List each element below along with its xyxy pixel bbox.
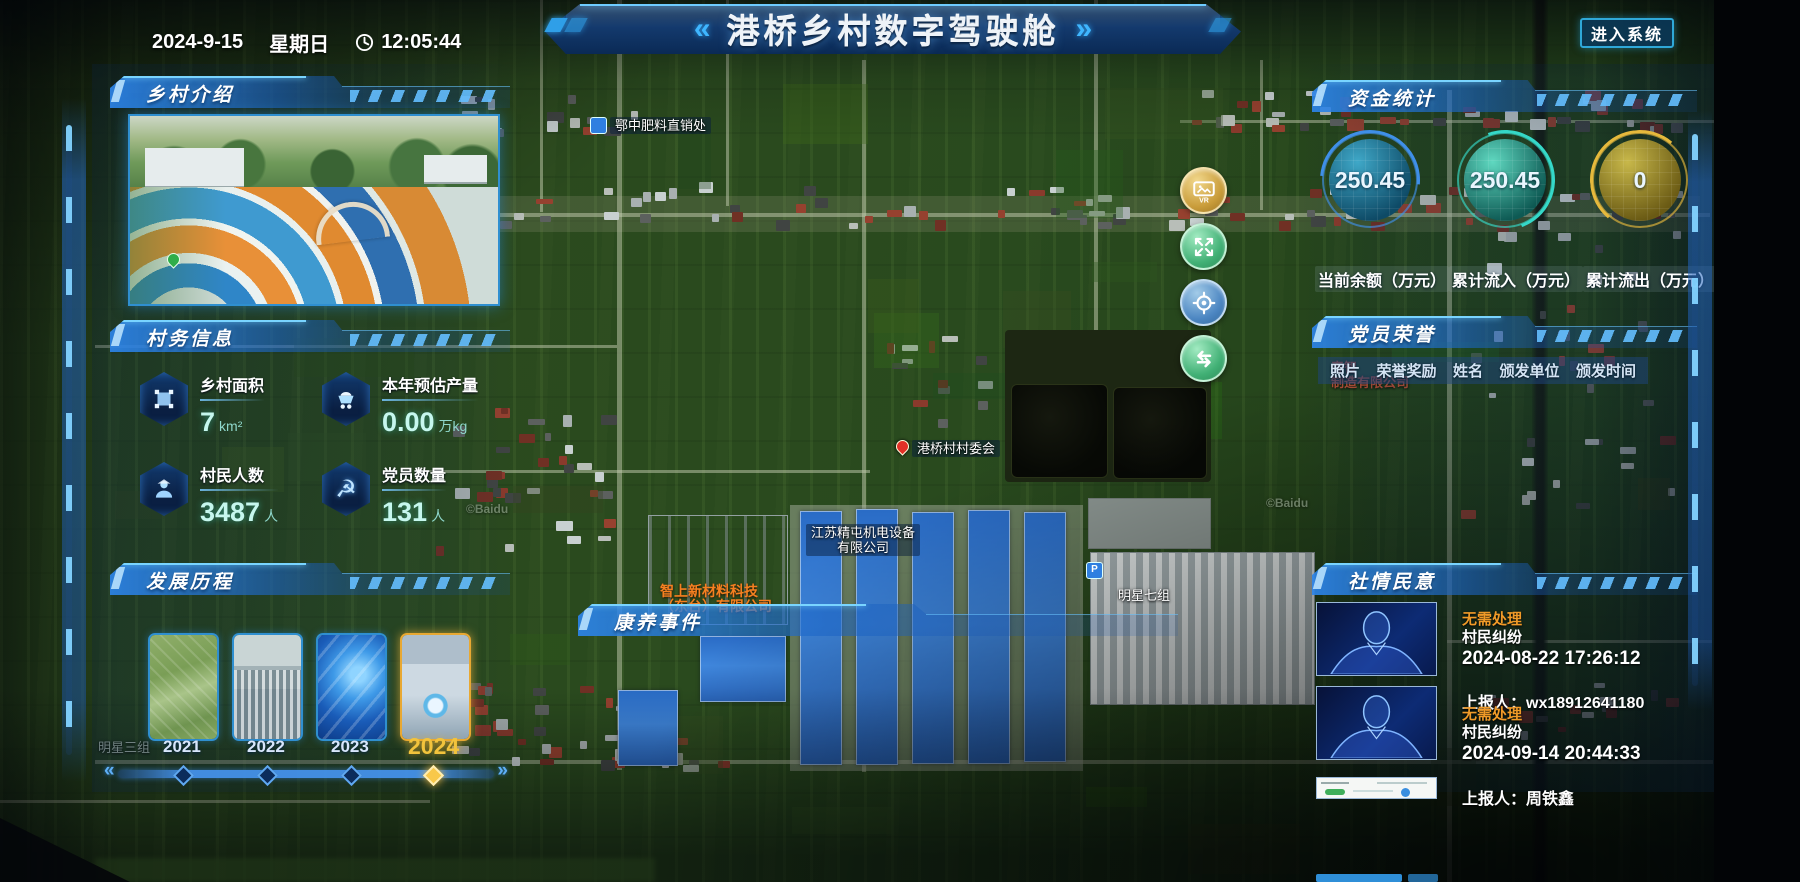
map-feature <box>1595 245 1603 253</box>
map-feature <box>1530 119 1546 130</box>
stat-estimated-yield: 本年预估产量 0.00万kg <box>322 372 512 438</box>
map-feature <box>535 705 549 715</box>
partial-thumb-edge <box>1408 874 1438 882</box>
map-feature <box>792 807 894 834</box>
map-feature <box>942 336 958 342</box>
map-feature <box>674 716 723 774</box>
map-feature <box>732 212 743 222</box>
map-feature <box>1638 478 1670 510</box>
map-feature <box>938 419 948 428</box>
map-label-line: 智上新材料科技 <box>660 583 758 599</box>
stat-value: 7km² <box>200 407 264 438</box>
gauge-outflow: 0 <box>1592 132 1688 228</box>
reporter-line: 上报人：周铁鑫 <box>1462 785 1574 809</box>
map-feature <box>617 0 622 770</box>
map-label: 港桥村村委会 <box>912 440 1000 457</box>
map-feature <box>1169 220 1186 231</box>
header-slashes-icon <box>350 90 500 102</box>
map-feature <box>1490 119 1500 127</box>
map-feature <box>601 760 615 770</box>
map-feature <box>1505 111 1519 123</box>
bright-field-band <box>95 858 655 882</box>
map-feature <box>559 456 567 465</box>
svg-text:VR: VR <box>1199 197 1209 204</box>
map-feature <box>913 400 929 406</box>
map-feature <box>565 445 573 454</box>
map-feature <box>1056 150 1124 218</box>
map-feature <box>604 188 614 195</box>
map-feature <box>904 206 916 216</box>
right-black-column <box>1714 0 1800 882</box>
map-feature <box>475 725 491 735</box>
map-feature <box>604 519 616 528</box>
stat-value: 131人 <box>382 497 446 528</box>
map-feature <box>545 433 551 441</box>
map-feature <box>567 536 581 544</box>
map-feature <box>1300 123 1308 131</box>
map-feature <box>1567 305 1575 313</box>
blue-roof <box>968 510 1010 764</box>
map-feature <box>528 419 544 425</box>
map-feature <box>1558 233 1571 241</box>
header-slashes-icon <box>1537 577 1687 589</box>
map-feature <box>512 757 520 766</box>
map-feature <box>1272 112 1285 117</box>
pond <box>1113 387 1207 479</box>
map-feature <box>1285 214 1294 220</box>
map-label: 明星七组 <box>1118 588 1170 603</box>
map-feature <box>568 95 576 103</box>
map-feature <box>436 546 444 556</box>
map-feature <box>678 129 711 189</box>
map-feature <box>606 698 613 708</box>
map-feature <box>776 220 790 232</box>
map-feature <box>849 223 859 229</box>
dashboard-screen: 鄂中肥料直销处 港桥村村委会 江苏精屯机电设备 有限公司 P 明星七组 智上新材… <box>0 0 1800 882</box>
map-feature <box>564 464 574 473</box>
map-feature <box>497 729 513 736</box>
map-feature <box>604 212 619 220</box>
map-feature <box>505 544 514 552</box>
map-feature <box>868 279 919 334</box>
map-label-line: 有限公司 <box>811 540 915 555</box>
map-feature <box>1666 698 1679 707</box>
map-feature <box>978 401 988 410</box>
event-time: 2024-08-22 17:26:12 <box>1462 647 1641 670</box>
panel-title: 发展历程 <box>146 567 234 594</box>
map-label-line: 江苏精屯机电设备 <box>811 525 915 540</box>
map-label: 鄂中肥料直销处 <box>610 117 711 134</box>
sentiment-thumb[interactable] <box>1316 686 1437 760</box>
map-feature <box>595 472 604 482</box>
year-label-2024[interactable]: 2024 <box>408 733 459 760</box>
status-badge: 无需处理 <box>1462 706 1641 724</box>
map-feature <box>796 204 807 213</box>
map-feature <box>935 220 946 231</box>
header-slashes-icon <box>350 334 500 346</box>
map-feature <box>1180 120 1714 123</box>
map-feature <box>1575 121 1591 132</box>
map-feature <box>577 463 591 469</box>
col-issuer: 颁发单位 <box>1499 360 1559 381</box>
map-feature <box>1548 117 1556 127</box>
clock-icon <box>355 33 374 52</box>
village-photo <box>128 114 500 306</box>
map-feature <box>514 213 523 220</box>
map-feature <box>1029 190 1045 196</box>
right-frame-bar <box>1688 110 1712 710</box>
map-feature <box>1188 824 1300 874</box>
history-timeline: « » <box>104 768 508 780</box>
sentiment-thumb-screenshot[interactable] <box>1316 777 1437 799</box>
map-feature <box>601 415 617 424</box>
map-feature <box>1380 117 1396 123</box>
map-feature <box>1433 118 1446 126</box>
header-slashes-icon <box>1537 330 1687 342</box>
map-feature <box>1594 683 1605 688</box>
map-feature <box>712 214 719 222</box>
map-feature <box>1553 480 1559 488</box>
event-time: 2024-09-14 20:44:33 <box>1462 742 1641 765</box>
map-feature <box>496 447 510 453</box>
title-chevron-left-icon: « <box>694 12 711 46</box>
map-feature <box>1307 210 1315 217</box>
map-feature <box>919 211 928 220</box>
year-label-2021[interactable]: 2021 <box>163 737 201 757</box>
sentiment-item-text[interactable]: 无需处理 村民纠纷 2024-08-22 17:26:12 <box>1462 611 1641 670</box>
map-feature <box>598 536 611 542</box>
stat-label: 乡村面积 <box>200 372 264 401</box>
col-date: 颁发时间 <box>1576 360 1636 381</box>
map-feature <box>510 634 571 665</box>
person-wireframe-icon <box>1317 603 1436 674</box>
gray-building <box>1088 498 1211 549</box>
map-feature <box>1272 125 1285 132</box>
year-label-2023[interactable]: 2023 <box>331 737 369 757</box>
map-feature <box>1587 384 1594 393</box>
title-banner: « 港桥乡村数字驾驶舱 » <box>545 4 1241 54</box>
photo-building <box>424 155 487 183</box>
map-feature <box>518 739 526 745</box>
fund-gauges: 250.45 250.45 0 <box>1322 132 1688 228</box>
header-slashes-icon <box>1537 94 1687 106</box>
blue-roof <box>618 690 678 766</box>
weekday-text: 星期日 <box>269 28 329 57</box>
layer-switch-icon <box>1191 346 1217 372</box>
map-feature <box>1086 787 1147 807</box>
date-text: 2024-9-15 <box>152 31 243 54</box>
enter-system-button[interactable]: 进入系统 <box>1580 18 1674 48</box>
map-feature <box>496 719 508 730</box>
photo-playground <box>130 187 498 304</box>
map-feature <box>547 121 558 132</box>
map-feature <box>485 687 492 696</box>
gauge-value: 250.45 <box>1322 132 1418 228</box>
map-feature <box>1504 232 1517 241</box>
map-feature <box>1400 119 1409 124</box>
map-feature <box>1252 101 1261 112</box>
photo-building <box>145 148 244 188</box>
fullscreen-button[interactable] <box>1180 223 1227 270</box>
map-label: 江苏精屯机电设备 有限公司 <box>806 524 920 556</box>
map-feature <box>1576 503 1589 509</box>
map-feature <box>580 741 587 749</box>
map-feature <box>1347 119 1363 130</box>
party-icon: ☭ <box>322 462 370 516</box>
map-feature <box>549 747 561 759</box>
stat-villagers: 村民人数 3487人 <box>140 462 330 528</box>
event-type: 村民纠纷 <box>1462 629 1641 647</box>
map-feature <box>1489 393 1497 398</box>
locate-icon <box>1191 290 1217 316</box>
blue-roof <box>700 636 786 702</box>
header-slashes-icon <box>350 577 500 589</box>
vr-photo-button[interactable]: VR <box>1180 167 1227 214</box>
map-feature <box>998 210 1005 219</box>
gauge-label: 累计流入（万元） <box>1449 266 1583 292</box>
year-label-2022[interactable]: 2022 <box>247 737 285 757</box>
stat-village-area: 乡村面积 7km² <box>140 372 330 438</box>
map-feature <box>1461 510 1475 519</box>
map-feature <box>1098 222 1111 229</box>
map-feature <box>542 744 552 754</box>
map-feature <box>1330 119 1344 126</box>
history-thumb-2023[interactable] <box>316 633 387 741</box>
cart-icon <box>322 372 370 426</box>
map-feature <box>1092 262 1156 282</box>
map-label: 明星三组 <box>98 740 150 755</box>
map-feature <box>1105 88 1223 139</box>
map-feature <box>643 192 651 202</box>
left-frame-bar <box>62 98 86 782</box>
map-feature <box>540 216 551 221</box>
map-feature <box>1585 439 1599 445</box>
map-feature <box>580 686 595 693</box>
datetime-bar: 2024-9-15 星期日 12:05:44 <box>152 28 461 57</box>
gauge-inflow: 250.45 <box>1457 132 1553 228</box>
map-feature <box>865 216 873 223</box>
map-feature <box>640 214 651 223</box>
map-feature <box>533 688 547 697</box>
map-feature <box>1007 188 1015 196</box>
stat-label: 党员数量 <box>382 462 446 491</box>
page-title: 港桥乡村数字驾驶舱 <box>727 5 1060 53</box>
map-feature <box>631 198 643 207</box>
people-icon <box>140 462 188 516</box>
area-icon <box>140 372 188 426</box>
gauge-value: 250.45 <box>1457 132 1553 228</box>
col-photo: 照片 <box>1330 360 1360 381</box>
map-feature <box>0 800 430 803</box>
timeline-next-icon[interactable]: » <box>497 760 508 782</box>
map-feature <box>556 521 573 531</box>
layer-switch-button[interactable] <box>1180 335 1227 382</box>
title-chevron-right-icon: » <box>1076 12 1093 46</box>
map-feature <box>1660 436 1675 445</box>
status-badge: 无需处理 <box>1462 611 1641 629</box>
map-feature <box>500 221 512 229</box>
map-feature <box>538 458 549 466</box>
map-feature <box>1522 458 1534 466</box>
map-feature <box>1522 495 1530 505</box>
gauge-label: 当前余额（万元） <box>1315 266 1449 292</box>
sentiment-item-text[interactable]: 无需处理 村民纠纷 2024-09-14 20:44:33 <box>1462 706 1641 765</box>
map-feature <box>519 434 535 443</box>
time-text: 12:05:44 <box>381 31 461 54</box>
map-feature <box>804 186 816 196</box>
person-wireframe-icon <box>1317 687 1436 758</box>
honors-table-header: 照片 荣誉奖励 姓名 颁发单位 颁发时间 <box>1318 357 1648 384</box>
vr-photo-icon: VR <box>1191 178 1217 204</box>
panel-title: 社情民意 <box>1348 567 1436 594</box>
map-feature <box>1673 231 1680 239</box>
map-feature <box>1237 101 1248 107</box>
map-feature <box>1221 115 1235 127</box>
map-feature <box>887 210 901 217</box>
map-feature <box>783 84 869 144</box>
map-feature <box>469 748 480 756</box>
map-feature <box>1260 60 1263 210</box>
map-feature <box>1540 311 1546 319</box>
shop-marker-icon[interactable] <box>590 117 607 134</box>
map-feature <box>669 188 678 199</box>
pond <box>1011 384 1108 478</box>
stat-label: 村民人数 <box>200 462 278 491</box>
fullscreen-icon <box>1192 235 1216 259</box>
timeline-prev-icon[interactable]: « <box>104 760 115 782</box>
stat-value: 3487人 <box>200 497 278 528</box>
event-type: 村民纠纷 <box>1462 724 1641 742</box>
map-feature <box>815 198 829 208</box>
panel-title: 党员荣誉 <box>1348 320 1436 347</box>
map-feature <box>1279 221 1291 230</box>
partial-thumb-edge <box>1316 874 1402 882</box>
panel-title: 乡村介绍 <box>146 80 234 107</box>
map-feature <box>536 199 553 205</box>
map-feature <box>540 0 543 212</box>
map-feature <box>1527 438 1535 448</box>
gauge-balance: 250.45 <box>1322 132 1418 228</box>
history-thumb-2021[interactable] <box>148 633 219 741</box>
map-feature <box>976 356 988 365</box>
stat-party-members: ☭ 党员数量 131人 <box>322 462 512 528</box>
col-award: 荣誉奖励 <box>1376 360 1436 381</box>
stat-label: 本年预估产量 <box>382 372 478 401</box>
map-feature <box>1265 92 1274 100</box>
baidu-watermark: ©Baidu <box>1266 496 1308 511</box>
stat-value: 0.00万kg <box>382 407 478 438</box>
map-feature <box>1621 463 1634 469</box>
map-feature <box>469 699 484 707</box>
map-feature <box>1643 400 1654 406</box>
locate-button[interactable] <box>1180 279 1227 326</box>
panel-title: 村务信息 <box>146 324 234 351</box>
map-feature <box>534 727 546 735</box>
history-thumb-2024[interactable] <box>400 633 471 741</box>
panel-title: 资金统计 <box>1348 84 1436 111</box>
sentiment-thumb[interactable] <box>1316 602 1437 676</box>
gauge-value: 0 <box>1592 132 1688 228</box>
map-feature <box>563 415 572 426</box>
map-feature <box>540 759 554 765</box>
map-feature <box>1557 117 1571 124</box>
map-feature <box>570 118 579 128</box>
map-feature <box>513 486 603 513</box>
map-feature <box>1620 447 1636 453</box>
map-feature <box>1627 120 1634 127</box>
map-feature <box>1230 213 1245 221</box>
map-feature <box>1178 209 1191 218</box>
map-feature <box>655 192 666 201</box>
history-thumb-2022[interactable] <box>232 633 303 741</box>
col-name: 姓名 <box>1453 360 1483 381</box>
fund-gauge-labels: 当前余额（万元） 累计流入（万元） 累计流出（万元） <box>1315 266 1695 292</box>
parking-marker-icon[interactable]: P <box>1086 562 1103 579</box>
panel-title: 康养事件 <box>614 608 702 635</box>
map-feature <box>1651 690 1658 702</box>
map-feature <box>1498 232 1506 241</box>
blue-roof <box>1024 512 1066 762</box>
